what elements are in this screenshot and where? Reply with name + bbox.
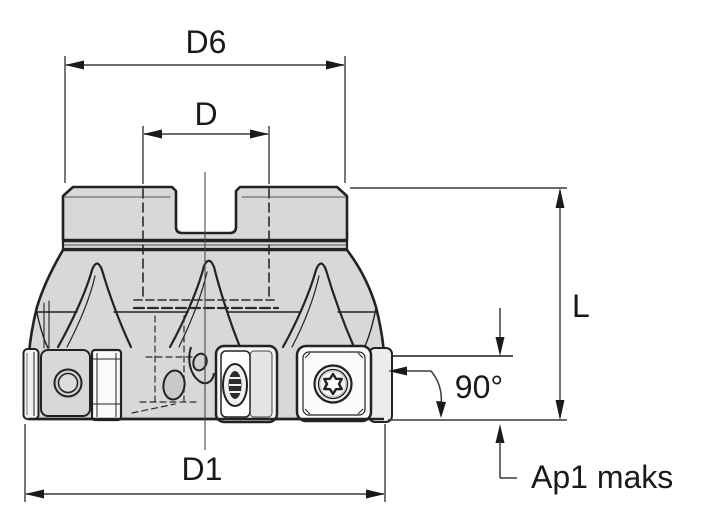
d1-arrow-right — [366, 490, 385, 499]
ap1-label: Ap1 maks — [531, 459, 673, 495]
insert-side-body — [92, 350, 121, 420]
cutter-technical-drawing: D6 D L 90° Ap1 maks — [0, 0, 708, 526]
technical-drawing-page: D6 D L 90° Ap1 maks — [0, 0, 708, 526]
d-arrow-right — [250, 130, 269, 139]
d-label: D — [194, 96, 217, 132]
dimension-d: D — [143, 96, 269, 184]
ap1-arrow-down — [496, 337, 505, 356]
angle-arc — [431, 371, 441, 404]
ap1-arrow-up — [496, 424, 505, 443]
screw-hole-inner — [59, 374, 78, 393]
insert-side-view — [92, 350, 121, 420]
d1-label: D1 — [182, 451, 223, 487]
insert-left-edge — [24, 349, 39, 419]
l-arrow-up — [556, 188, 565, 208]
l-label: L — [572, 288, 590, 324]
d-arrow-left — [143, 130, 162, 139]
d1-arrow-left — [25, 490, 44, 499]
torx-screw-front-icon — [315, 366, 352, 403]
d6-arrow-right — [326, 61, 345, 70]
insert-left-edge-body — [24, 349, 39, 419]
d6-arrow-left — [65, 61, 84, 70]
l-arrow-down — [556, 400, 565, 420]
dimension-ap1: Ap1 maks — [393, 308, 673, 495]
angle-arrow-down — [436, 401, 446, 418]
torx-screw-side-icon — [223, 364, 247, 406]
pocket-left — [41, 350, 90, 416]
insert-center — [216, 346, 277, 422]
d6-label: D6 — [186, 24, 227, 60]
insert-foremost-outline — [369, 348, 392, 422]
angle-annotation-90: 90° — [388, 367, 503, 419]
insert-center-side-face — [250, 351, 272, 417]
angle-label: 90° — [455, 369, 503, 405]
screw-hole-icon — [55, 370, 82, 397]
insert-right — [297, 346, 371, 421]
